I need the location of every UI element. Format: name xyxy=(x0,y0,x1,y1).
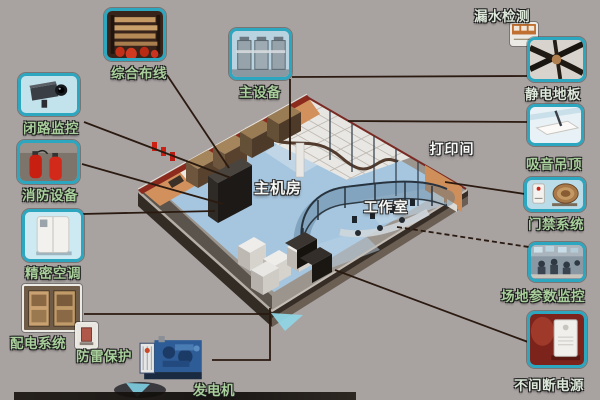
main-equipment-label: 主设备 xyxy=(239,81,281,101)
acoustic-ceiling-tile xyxy=(527,104,584,146)
print-room-label: 打印间 xyxy=(430,139,475,159)
antistatic-floor-tile xyxy=(527,37,586,82)
air-conditioner-icon xyxy=(25,212,81,259)
fire-extinguisher-icon xyxy=(20,143,77,181)
main-machine-room-label: 主机房 xyxy=(254,177,302,198)
fire-equipment-tile xyxy=(17,140,80,184)
power-cabinet-icon xyxy=(24,286,80,330)
lightning-protection-label: 防雷保护 xyxy=(76,345,132,365)
leak-detection-label: 漏水检测 xyxy=(474,5,530,25)
line-site-monitoring xyxy=(397,227,529,247)
power-distribution-label: 配电系统 xyxy=(10,332,66,352)
work-room-label: 工作室 xyxy=(364,197,409,217)
antistatic-floor-label: 静电地板 xyxy=(525,83,581,103)
surge-protector-icon xyxy=(77,324,96,347)
ups-icon xyxy=(530,314,584,365)
machine-room-diagram: 综合布线 闭路监控 消防设备 精密空调 配电系统 防雷保护 发电机 主设备 漏水… xyxy=(0,0,600,400)
cctv-monitoring-tile xyxy=(18,73,80,116)
line-integrated-cabling xyxy=(167,75,229,168)
access-control-tile xyxy=(524,177,586,212)
line-fire-equipment xyxy=(82,164,223,204)
generator-icon xyxy=(138,334,210,385)
acoustic-ceiling-label: 吸音吊顶 xyxy=(526,153,582,173)
main-equipment-tile xyxy=(229,28,292,80)
line-antistatic-floor xyxy=(292,76,527,77)
line-ups xyxy=(335,270,528,342)
generator-label: 发电机 xyxy=(193,379,235,399)
fire-equipment-label: 消防设备 xyxy=(22,184,78,204)
cctv-camera-icon xyxy=(21,76,77,113)
site-monitoring-tile xyxy=(528,242,586,282)
access-reader-icon xyxy=(527,180,583,209)
integrated-cabling-label: 综合布线 xyxy=(111,62,167,82)
power-distribution-tile xyxy=(22,284,82,332)
line-precision-ac xyxy=(82,211,215,214)
line-cctv-monitoring xyxy=(84,122,231,178)
integrated-cabling-icon xyxy=(107,11,163,58)
integrated-cabling-tile xyxy=(104,8,166,61)
site-monitoring-label: 场地参数监控 xyxy=(501,285,585,305)
precision-ac-tile xyxy=(22,209,84,262)
main-equipment-icon xyxy=(232,31,289,77)
control-room-icon xyxy=(531,245,583,279)
access-control-label: 门禁系统 xyxy=(528,213,584,233)
line-acoustic-ceiling xyxy=(348,121,527,122)
floor-cables-icon xyxy=(530,40,583,79)
ups-label: 不间断电源 xyxy=(514,374,584,394)
precision-ac-label: 精密空调 xyxy=(25,262,81,282)
ups-tile xyxy=(527,311,587,368)
cctv-monitoring-label: 闭路监控 xyxy=(23,117,79,137)
ceiling-panel-icon xyxy=(530,107,581,143)
line-access-control xyxy=(445,182,525,194)
